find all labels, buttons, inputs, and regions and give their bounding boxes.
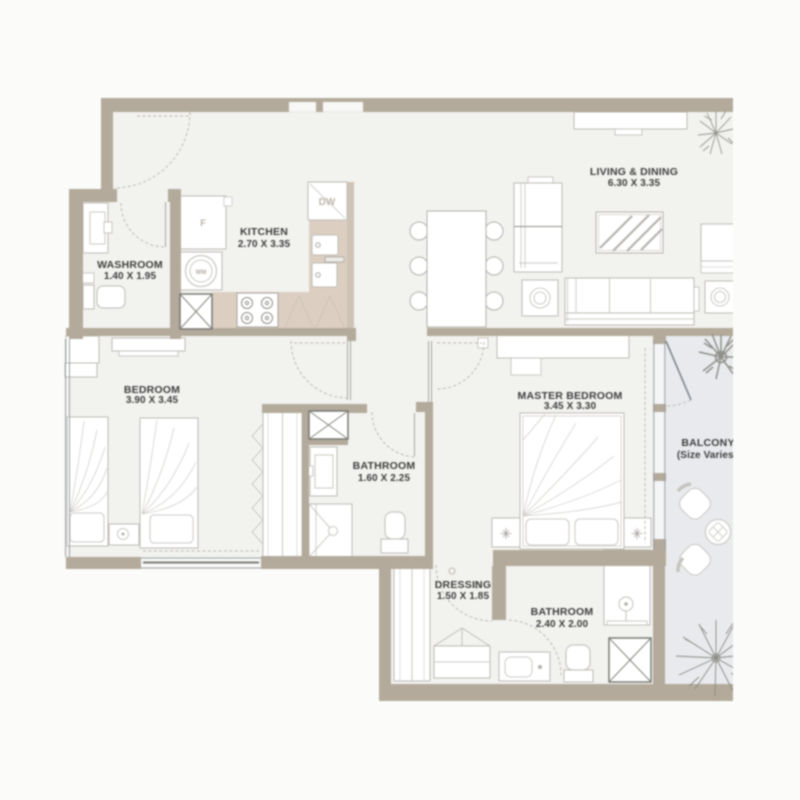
svg-text:KITCHEN: KITCHEN (240, 226, 288, 238)
svg-text:WM: WM (196, 270, 207, 276)
svg-text:2.70 X 3.35: 2.70 X 3.35 (238, 239, 291, 250)
svg-text:3.90 X 3.45: 3.90 X 3.45 (126, 395, 179, 406)
svg-text:BALCONY: BALCONY (681, 437, 734, 449)
svg-text:1.40 X 1.95: 1.40 X 1.95 (104, 271, 157, 282)
svg-text:DW: DW (319, 197, 336, 208)
svg-text:BATHROOM: BATHROOM (353, 460, 416, 472)
svg-text:1.60 X 2.25: 1.60 X 2.25 (358, 473, 411, 484)
svg-text:DRESSING: DRESSING (435, 579, 491, 591)
svg-text:BATHROOM: BATHROOM (531, 606, 594, 618)
svg-text:F: F (200, 218, 206, 228)
svg-text:1.50 X 1.85: 1.50 X 1.85 (437, 591, 490, 602)
svg-text:6.30 X 3.35: 6.30 X 3.35 (608, 178, 661, 189)
svg-text:WASHROOM: WASHROOM (97, 259, 163, 271)
svg-text:LIVING & DINING: LIVING & DINING (590, 166, 678, 178)
svg-text:2.40 X 2.00: 2.40 X 2.00 (536, 619, 589, 630)
svg-text:3.45 X 3.30: 3.45 X 3.30 (544, 401, 597, 412)
svg-text:(Size Varies): (Size Varies) (677, 450, 737, 461)
